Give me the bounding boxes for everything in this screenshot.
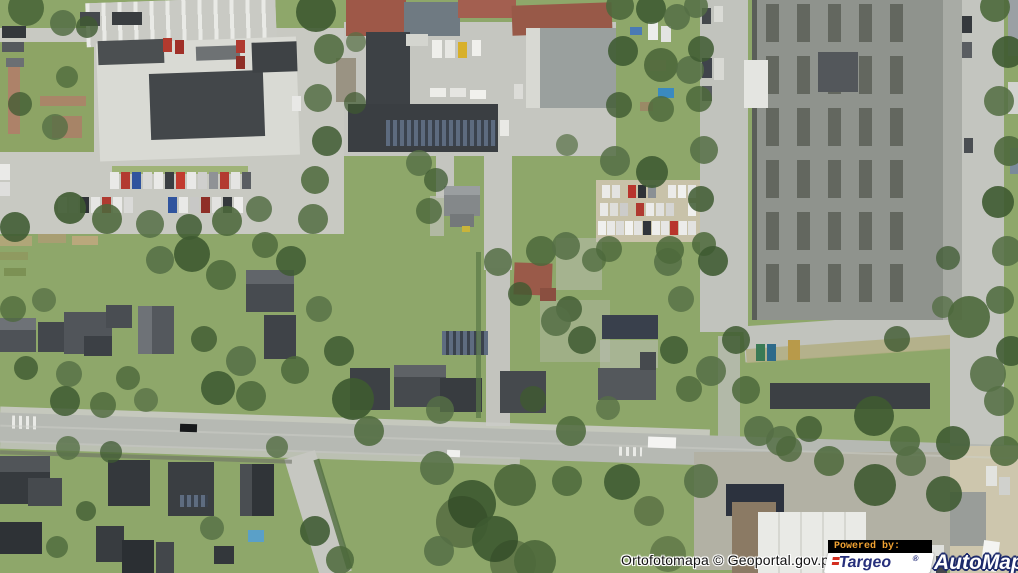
car (964, 138, 973, 153)
factory-skylights (797, 4, 810, 316)
tree (776, 436, 802, 462)
targeo-wordmark: Targeo (838, 553, 893, 573)
tree (42, 114, 68, 140)
tree (796, 416, 822, 442)
tree (56, 361, 82, 387)
container-row (112, 12, 142, 25)
aerial-map-canvas[interactable] (0, 0, 1018, 573)
car (124, 197, 133, 213)
house-roof-ridge (394, 365, 446, 377)
tree (984, 86, 1014, 116)
tree (116, 366, 140, 390)
car (0, 164, 10, 180)
car (190, 197, 199, 213)
tree (76, 16, 98, 38)
van (986, 466, 997, 486)
van (445, 40, 455, 58)
car (628, 185, 636, 198)
car (514, 84, 523, 99)
tree (416, 198, 442, 224)
tree (926, 476, 962, 512)
house-annex (84, 336, 112, 356)
car (209, 172, 218, 189)
house-roof (122, 540, 154, 573)
car (616, 221, 624, 235)
tree (301, 166, 329, 194)
car (0, 182, 10, 196)
car (610, 203, 618, 216)
house-roof (602, 315, 658, 339)
tree (246, 196, 272, 222)
rooftop-unit (406, 34, 428, 46)
tree (354, 416, 384, 446)
car (607, 221, 615, 235)
tree (136, 210, 164, 238)
tree (552, 466, 582, 496)
tree (54, 192, 86, 224)
tree (684, 464, 718, 498)
house-roof (0, 522, 42, 554)
car (602, 185, 610, 198)
yellow-object (462, 226, 470, 232)
tree (604, 464, 640, 500)
tree (606, 92, 632, 118)
truck (6, 58, 24, 67)
tree (636, 156, 668, 188)
car (652, 221, 660, 235)
garden-plot (38, 234, 66, 243)
car (187, 172, 196, 189)
house-roof-ridge (0, 456, 50, 472)
pool (248, 530, 264, 542)
car (163, 38, 172, 52)
tree (212, 206, 242, 236)
cottage-annex (540, 288, 556, 301)
house-annex (640, 352, 656, 370)
tree (226, 346, 256, 376)
car (625, 221, 633, 235)
solar-array (386, 120, 496, 146)
tree (76, 501, 96, 521)
tree-shadow (634, 496, 664, 526)
car (634, 221, 642, 235)
car (668, 185, 676, 198)
industrial-roof-red (346, 0, 406, 36)
tree (596, 396, 620, 420)
car (500, 120, 509, 136)
tree (556, 134, 578, 156)
tree (252, 232, 278, 258)
house-roof (214, 546, 234, 564)
powered-by-label: Powered by: (834, 541, 900, 552)
tree (300, 516, 330, 546)
tree (174, 236, 210, 272)
car (231, 172, 240, 189)
tree (936, 426, 970, 460)
tree (92, 204, 122, 234)
car (121, 172, 130, 189)
map-attribution: Ortofotomapa © Geoportal.gov.pl (621, 552, 833, 568)
tree (982, 186, 1014, 218)
tree (688, 36, 714, 62)
garden-path (40, 96, 86, 106)
automapa-wordmark: AutoMapa (934, 551, 1018, 573)
house-roof (96, 526, 124, 562)
tree (426, 396, 454, 424)
van (472, 40, 481, 56)
factory-skylights (766, 4, 779, 316)
tree (324, 336, 354, 366)
tree (50, 386, 80, 416)
tree (556, 416, 586, 446)
garden-plot (72, 236, 98, 245)
factory-skylights (890, 4, 903, 316)
tree (134, 388, 158, 412)
building-roof (540, 28, 616, 108)
house-roof-ridge (444, 186, 480, 195)
garden-plot (4, 268, 26, 276)
car (679, 221, 687, 235)
crosswalk (619, 447, 642, 457)
tree (970, 356, 1006, 392)
tree (656, 236, 684, 264)
car (688, 221, 696, 235)
factory-roof-patch (818, 52, 858, 92)
car (643, 221, 651, 235)
tree (8, 0, 44, 26)
car (220, 172, 229, 189)
car (714, 6, 723, 22)
tree (582, 248, 606, 272)
tree (32, 288, 56, 312)
car (600, 203, 608, 216)
house-roof (264, 315, 296, 359)
solar-array (180, 495, 208, 507)
factory-skylights (828, 4, 841, 316)
tree (541, 306, 571, 336)
car (201, 197, 210, 213)
car (620, 203, 628, 216)
tree (200, 516, 224, 540)
car (646, 203, 654, 216)
car-on-road (180, 424, 197, 433)
car (179, 197, 188, 213)
tree (8, 92, 32, 116)
tree (992, 236, 1018, 266)
tree (854, 464, 896, 506)
tree (948, 296, 990, 338)
tree (0, 212, 30, 242)
car (612, 185, 620, 198)
car (670, 221, 678, 235)
tree (424, 536, 454, 566)
tree (146, 246, 174, 274)
tree (276, 246, 306, 276)
tree (514, 540, 556, 573)
rooftop-unit (196, 45, 240, 61)
car (110, 172, 119, 189)
house-roof-ridge (138, 306, 152, 354)
car (143, 172, 152, 189)
car (678, 185, 686, 198)
car (242, 172, 251, 189)
tree (424, 168, 448, 192)
tree (986, 286, 1014, 314)
car (656, 203, 664, 216)
tree (332, 378, 374, 420)
tree (896, 446, 926, 476)
tree (312, 126, 342, 156)
tree (266, 436, 288, 458)
factory-skylights (859, 4, 872, 316)
house-roof (106, 305, 132, 328)
truck (2, 42, 24, 52)
tree (688, 186, 714, 212)
car (292, 96, 301, 111)
targeo-logo[interactable]: Targeo ® (824, 553, 934, 573)
van (430, 88, 446, 97)
van (450, 88, 466, 97)
tree (608, 36, 638, 66)
house-roof (38, 322, 64, 352)
tree (206, 260, 236, 290)
car (132, 172, 141, 189)
car (962, 16, 972, 33)
van (661, 26, 671, 42)
building-roof (526, 28, 540, 108)
factory-annex (943, 0, 962, 320)
van (648, 22, 658, 40)
tree (994, 136, 1018, 166)
factory-edge (752, 0, 757, 320)
tree (884, 326, 910, 352)
tree (56, 436, 80, 460)
garden-plot (0, 252, 28, 260)
house-roof (168, 462, 214, 516)
car (175, 40, 184, 54)
tree (494, 464, 536, 506)
building-roof-dark (98, 39, 165, 65)
industrial-roof-gray (404, 2, 460, 36)
truck (714, 58, 724, 80)
tree (814, 446, 844, 476)
car (636, 203, 644, 216)
tree (636, 0, 666, 24)
solar-array (442, 331, 488, 355)
car (661, 221, 669, 235)
car (154, 172, 163, 189)
car (666, 203, 674, 216)
tree (600, 146, 630, 176)
house-roof-ridge (240, 464, 252, 516)
tree (668, 286, 694, 312)
car (168, 197, 177, 213)
tree (344, 92, 366, 114)
tree (90, 392, 116, 418)
tree (281, 356, 309, 384)
tree (484, 248, 512, 276)
tree (568, 326, 596, 354)
industrial-roof-red (458, 0, 516, 18)
tree (686, 86, 712, 112)
tree (46, 536, 68, 558)
tree (0, 296, 26, 322)
tree (698, 246, 728, 276)
garage-row (770, 383, 930, 409)
warehouse (744, 60, 768, 108)
van (999, 477, 1010, 495)
map-root: Ortofotomapa © Geoportal.gov.pl Powered … (0, 0, 1018, 573)
van (470, 90, 486, 99)
tree (520, 386, 546, 412)
tree (56, 66, 78, 88)
tree (660, 336, 688, 364)
building-roof-dark (251, 41, 297, 73)
tree (304, 84, 332, 112)
tree (722, 326, 750, 354)
tree (314, 34, 344, 64)
tree (732, 376, 760, 404)
tree (690, 136, 718, 164)
tree (552, 232, 580, 260)
house-roof (28, 478, 62, 506)
tree (100, 441, 122, 463)
truck-on-road (648, 437, 676, 449)
factory-roof (754, 0, 946, 320)
tree (696, 356, 726, 386)
truck (2, 26, 26, 38)
tree (992, 36, 1018, 68)
hedge (476, 252, 481, 418)
tree (14, 356, 38, 380)
car (598, 221, 606, 235)
tree (644, 48, 678, 82)
truck-blue (630, 27, 642, 35)
car (962, 42, 972, 58)
car (638, 185, 646, 198)
bin (756, 344, 765, 361)
tree (936, 246, 960, 270)
tree (648, 96, 674, 122)
house-roof (108, 460, 150, 506)
tree (854, 396, 894, 436)
registered-trademark-symbol: ® (912, 554, 919, 563)
tree (306, 296, 332, 322)
building-roof-dark (149, 70, 265, 140)
car (236, 40, 245, 53)
tree (236, 381, 266, 411)
car (236, 56, 245, 69)
van (432, 40, 442, 58)
car (165, 172, 174, 189)
bin (767, 344, 776, 361)
tree (50, 10, 76, 36)
shed (788, 340, 800, 360)
tree (298, 204, 328, 234)
tree (191, 326, 217, 352)
car (198, 172, 207, 189)
tree (201, 371, 235, 405)
tree (326, 546, 354, 573)
targeo-logo-inner: Targeo ® (825, 553, 934, 573)
tree (508, 282, 532, 306)
tree (346, 32, 366, 52)
house-roof (156, 542, 174, 573)
car (176, 172, 185, 189)
tree (990, 436, 1018, 466)
tree (526, 236, 556, 266)
tree (420, 451, 454, 485)
powered-by-bar: Powered by: (828, 540, 932, 553)
automapa-logo[interactable]: AutoMapa® (934, 545, 1018, 573)
van (458, 42, 467, 58)
